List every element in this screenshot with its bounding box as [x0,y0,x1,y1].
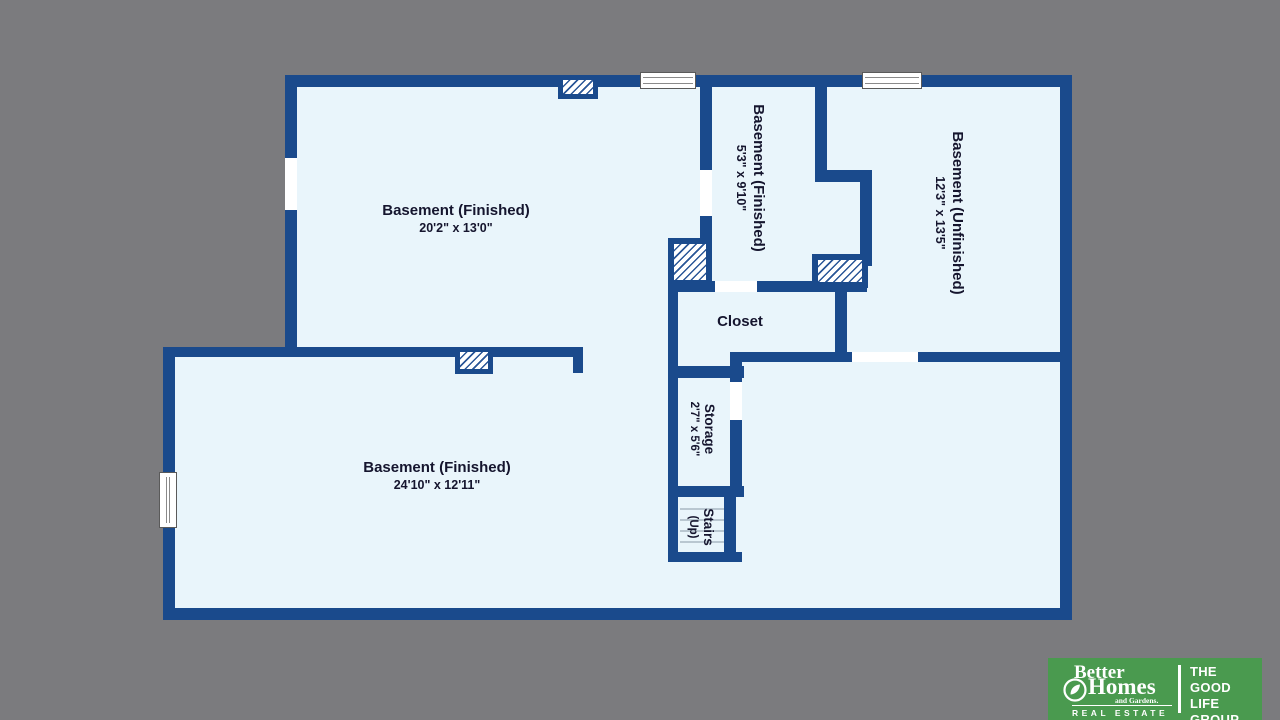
room-label-basement-unfinished: Basement (Unfinished) 12'3" x 13'5" [930,103,970,323]
hatch-area-mid-left [668,238,712,286]
window-left-lower [159,472,177,528]
room-dims: 24'10" x 12'11" [394,477,481,493]
room-label-closet: Closet [690,305,790,337]
wall-storage-right [730,352,742,497]
hatch-area-mid-right [812,254,868,288]
brokerage-logo: Better Homes and Gardens. REAL ESTATE TH… [1048,658,1262,720]
door-opening-unfinished [852,352,918,362]
floor-plan-page: Basement (Finished) 20'2" x 13'0" Baseme… [0,0,1280,720]
exterior-wall-bottom [163,608,1072,620]
room-dims: 2'7" x 5'6" [688,402,702,457]
logo-homes: Homes [1088,675,1156,698]
wall-midroom-left-upper [700,75,712,172]
room-dims: (Up) [687,516,701,539]
room-name: Storage [702,404,719,454]
room-label-basement-finished-mid: Basement (Finished) 5'3" x 9'10" [731,73,771,283]
logo-vertical-divider [1178,665,1181,713]
window-top-left [640,72,696,89]
wall-left-column [668,281,678,562]
logo-real-estate: REAL ESTATE [1072,708,1168,718]
logo-group-line2: GOOD LIFE [1190,680,1262,712]
logo-group-line3: GROUP [1190,712,1262,720]
logo-divider-rule [1072,705,1172,706]
room-label-basement-finished-top: Basement (Finished) 20'2" x 13'0" [306,198,606,238]
exterior-wall-right [1060,75,1072,620]
logo-group-line1: THE [1190,664,1262,680]
hatch-area-center-wall [455,347,493,374]
room-name: Basement (Finished) [363,458,511,477]
wall-stub [573,347,583,373]
room-dims: 20'2" x 13'0" [419,220,492,236]
room-dims: 12'3" x 13'5" [933,176,949,249]
room-name: Basement (Finished) [750,104,769,252]
wall-midroom-right-upper [815,75,827,172]
door-opening-storage [730,382,742,420]
room-name: Basement (Finished) [382,201,530,220]
room-dims: 5'3" x 9'10" [734,145,750,211]
logo-group-name: THE GOOD LIFE GROUP [1190,664,1262,720]
exterior-wall-left-upper [285,75,297,357]
room-name: Basement (Unfinished) [949,131,968,294]
wall-lower-room-top [163,347,583,357]
wall-jog-vertical [860,170,872,266]
wall-closet-right [835,292,847,358]
wall-stairs-right [724,497,736,557]
room-label-stairs: Stairs (Up) [684,495,720,559]
room-label-storage: Storage 2'7" x 5'6" [686,364,720,494]
hatch-area-top-wall [558,75,598,99]
room-label-basement-finished-bottom: Basement (Finished) 24'10" x 12'11" [287,455,587,495]
door-opening-midroom [700,170,712,216]
logo-and-gardens: and Gardens. [1115,697,1158,705]
room-name: Stairs [701,508,718,546]
window-left-upper [285,158,297,210]
window-top-right [862,72,922,89]
room-name: Closet [717,312,763,331]
